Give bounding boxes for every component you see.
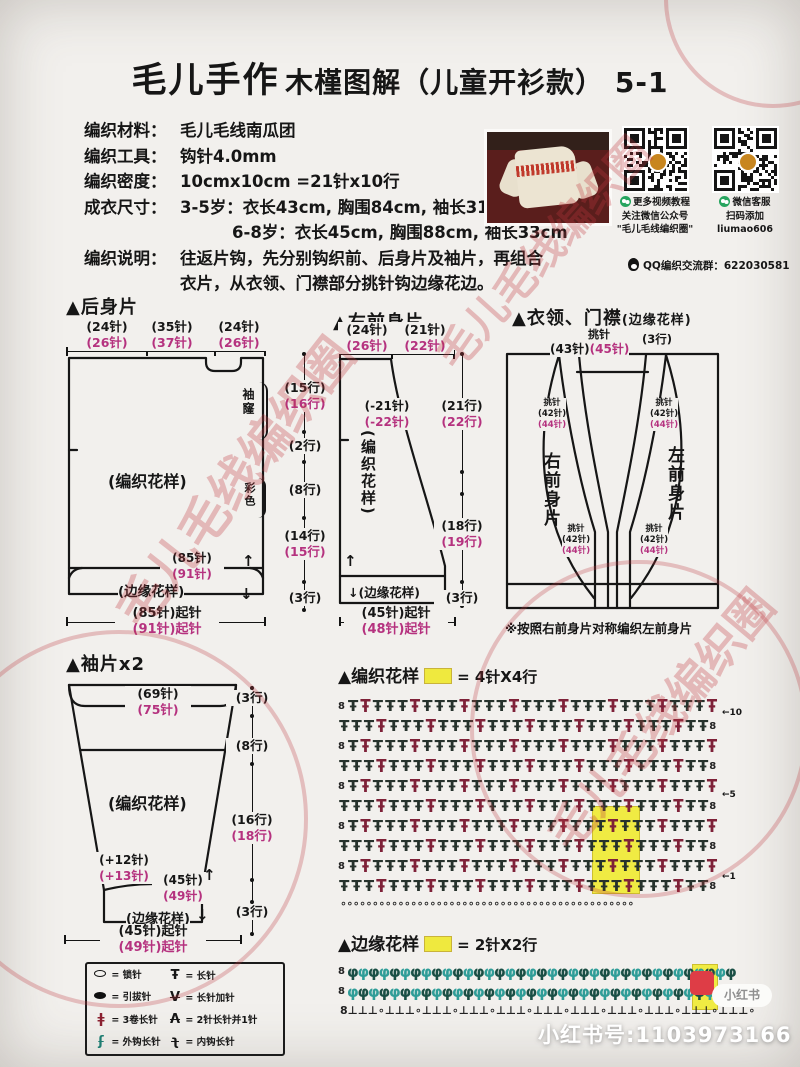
heading-edge-pattern: ▲边缘花样= 2针X2行 [338, 930, 537, 955]
collar-top-sts: (43针)(45针) [550, 340, 629, 357]
sleeve-dim-line [252, 686, 253, 936]
legend-triple-treble: ǂ = 3卷长针 [94, 1011, 168, 1029]
qr-logo-icon [648, 152, 668, 172]
slip-stitch-icon [94, 992, 106, 999]
heading-sleeve: ▲袖片x2 [66, 650, 145, 676]
legend-dc2tog: Λ = 2针长针并1针 [168, 1011, 278, 1029]
wechat-icon [719, 196, 730, 207]
xiaohongshu-logo [690, 971, 714, 995]
stitch-legend: = 锁针 Ŧ = 长针 = 引拔针 V = 长针加针 ǂ = 3卷长针 Λ = … [85, 962, 285, 1056]
mid-dim-5: (3行) [277, 590, 333, 606]
row-marker-1: ←1 [722, 872, 736, 882]
legend-slip: = 引拔针 [94, 989, 168, 1007]
row-marker-10: ←10 [722, 708, 742, 718]
dc-increase-icon: V [168, 989, 182, 1006]
back-armhole-label: 袖窿 [240, 388, 257, 416]
photo-cardigan [487, 132, 609, 223]
xiaohongshu-badge: 小红书 [712, 984, 772, 1007]
edge-stitch-chart: 8φφφφφφφφφφφφφφφφφφφφφφφφφφφφφφφφφφφφφ8φ… [338, 962, 738, 1002]
collar-note: ※按照右前身片对称编织左前身片 [505, 618, 692, 637]
sleeve-caston: (45针)起针(49针)起针 [100, 924, 206, 956]
collar-side-sts-left: 挑针 (42针) (44针) [538, 398, 566, 431]
rf-pattern-label: (编织花样) [358, 430, 379, 516]
legend-dc: Ŧ = 长针 [168, 967, 278, 985]
mid-dim-4: (14行)(15行) [277, 528, 333, 560]
info-row: 编织工具：钩针4.0mm [84, 144, 484, 170]
back-pattern-label: (编织花样) [108, 468, 187, 492]
qr1-caption: 更多视频教程 关注微信公众号 "毛儿毛线编织圈" [612, 196, 698, 237]
sleeve-pattern-label: (编织花样) [108, 790, 187, 814]
mid-dim-1: (15行)(16行) [277, 380, 333, 412]
back-caston: (85针)起针(91针)起针 [115, 606, 219, 638]
rf-dim-top-1: (24针)(26针) [338, 322, 396, 354]
sample-photo [484, 129, 612, 226]
title-rest: 木槿图解（儿童开衫款） 5-1 [285, 66, 668, 99]
sleeve-dim-1: (3行) [226, 690, 278, 706]
qr-logo-icon [738, 152, 758, 172]
rf-caston: (45针)起针(48针)起针 [344, 606, 448, 638]
info-row: 成衣尺寸：3-5岁：衣长43cm, 胸围84cm, 袖长31cm [84, 195, 484, 221]
qq-icon [628, 258, 639, 271]
chain-stitch-icon [94, 970, 106, 977]
rf-dim-right-2: (18行)(19行) [434, 518, 490, 550]
collar-side-sts-right: 挑针 (42针) (44针) [650, 398, 678, 431]
up-arrow-icon: ↑ [242, 552, 255, 570]
qq-group-line: QQ编织交流群：622030581 [628, 258, 790, 273]
back-hem-label: (边缘花样) [118, 580, 184, 600]
collar-left-piece-label: 左前身片 [662, 446, 687, 522]
heading-main-pattern: ▲编织花样= 4针X4行 [338, 662, 537, 687]
sleeve-dim-3: (16行)(18行) [226, 812, 278, 844]
rf-dim-top-2: (21针)(22针) [396, 322, 454, 354]
rf-right-dim-line [462, 354, 463, 606]
up-arrow-icon: ↑ [344, 552, 357, 570]
wechat-icon [620, 196, 631, 207]
back-hem-sts: (85针)(91针) [160, 550, 224, 582]
info-row: 编织材料：毛儿毛线南瓜团 [84, 118, 484, 144]
back-post-dc-icon: ʅ [168, 1033, 182, 1050]
legend-chain: = 锁针 [94, 967, 168, 985]
up-arrow-icon: ↑ [203, 866, 216, 884]
down-arrow-icon: ↓ [196, 906, 209, 924]
down-arrow-icon: ↓ [240, 585, 253, 603]
back-dim-top-left: (24针)(26针) [76, 319, 138, 351]
triple-treble-icon: ǂ [94, 1011, 108, 1028]
sleeve-top-sts: (69针)(75针) [125, 686, 191, 718]
info-row: 6-8岁：衣长45cm, 胸围88cm, 袖长33cm [84, 220, 484, 246]
info-row: 编织密度：10cmx10cm =21针x10行 [84, 169, 484, 195]
mid-dim-2: (2行) [277, 438, 333, 454]
double-crochet-icon: Ŧ [168, 967, 182, 984]
back-top-dim-line [66, 351, 266, 352]
repeat-swatch [424, 936, 452, 952]
main-chart-foundation-row: ∘∘∘∘∘∘∘∘∘∘∘∘∘∘∘∘∘∘∘∘∘∘∘∘∘∘∘∘∘∘∘∘∘∘∘∘∘∘∘∘… [340, 897, 634, 910]
sleeve-dim-2: (8行) [226, 738, 278, 754]
page-title: 毛儿手作 木槿图解（儿童开衫款） 5-1 [0, 52, 800, 103]
dc2tog-icon: Λ [168, 1011, 182, 1028]
info-block: 编织材料：毛儿毛线南瓜团 编织工具：钩针4.0mm 编织密度：10cmx10cm… [84, 118, 484, 297]
collar-right-piece-label: 右前身片 [538, 452, 563, 528]
collar-top-rows: (3行) [642, 331, 672, 347]
collar-inner-sts-left: 挑针 (42针) (44针) [562, 524, 590, 557]
main-stitch-chart: 8ŦŦŦŦŦŦŦŦŦŦŦŦŦŦŦŦŦŦŦŦŦŦŦŦŦŦŦŦŦŦŦŦŦŦŦŦŦŦŦ… [338, 696, 718, 896]
rf-dim-right-3: (3行) [434, 590, 490, 606]
back-dim-top-mid: (35针)(37针) [141, 319, 203, 351]
armhole-brace [257, 382, 268, 440]
legend-front-post-dc: ʃ = 外钩长针 [94, 1033, 168, 1051]
row-marker-5: ←5 [722, 790, 736, 800]
rf-dim-right-1: (21行)(22行) [434, 398, 490, 430]
sleeve-inc: (+12针)(+13针) [92, 852, 156, 884]
heading-back-piece: ▲后身片 [66, 293, 138, 319]
mid-dim-3: (8行) [277, 482, 333, 498]
xiaohongshu-id: 小红书号:1103973166 [538, 1019, 792, 1049]
rf-neck-dec: (-21针)(-22针) [352, 398, 422, 430]
info-row: 衣片，从衣领、门襟部分挑针钩边缘花边。 [84, 271, 484, 297]
collar-inner-sts-right: 挑针 (42针) (44针) [640, 524, 668, 557]
sleeve-dim-4: (3行) [226, 904, 278, 920]
back-dim-top-right: (24针)(26针) [208, 319, 270, 351]
rf-top-dim-line [339, 354, 455, 355]
back-colorwork-label: 彩色 [241, 482, 257, 508]
legend-dc-inc: V = 长针加针 [168, 989, 278, 1007]
info-row: 编织说明：往返片钩，先分别钩织前、后身片及袖片，再组合 [84, 246, 484, 272]
pattern-sheet: 毛儿手作 木槿图解（儿童开衫款） 5-1 编织材料：毛儿毛线南瓜团 编织工具：钩… [0, 0, 800, 1067]
colorwork-bracket [256, 478, 266, 518]
edge-chart-foundation-row: 8⊥⊥⊥∘⊥⊥⊥∘⊥⊥⊥∘⊥⊥⊥∘⊥⊥⊥∘⊥⊥⊥∘⊥⊥⊥∘⊥⊥⊥∘⊥⊥⊥∘⊥⊥⊥… [340, 1004, 755, 1017]
qr2-caption: 微信客服 扫码添加 liumao606 [702, 196, 788, 237]
legend-back-post-dc: ʅ = 内钩长针 [168, 1033, 278, 1051]
front-post-dc-icon: ʃ [94, 1033, 108, 1050]
repeat-swatch [424, 668, 452, 684]
rf-hem-label: ↓(边缘花样) [348, 582, 420, 601]
brand-name: 毛儿手作 [132, 61, 280, 101]
